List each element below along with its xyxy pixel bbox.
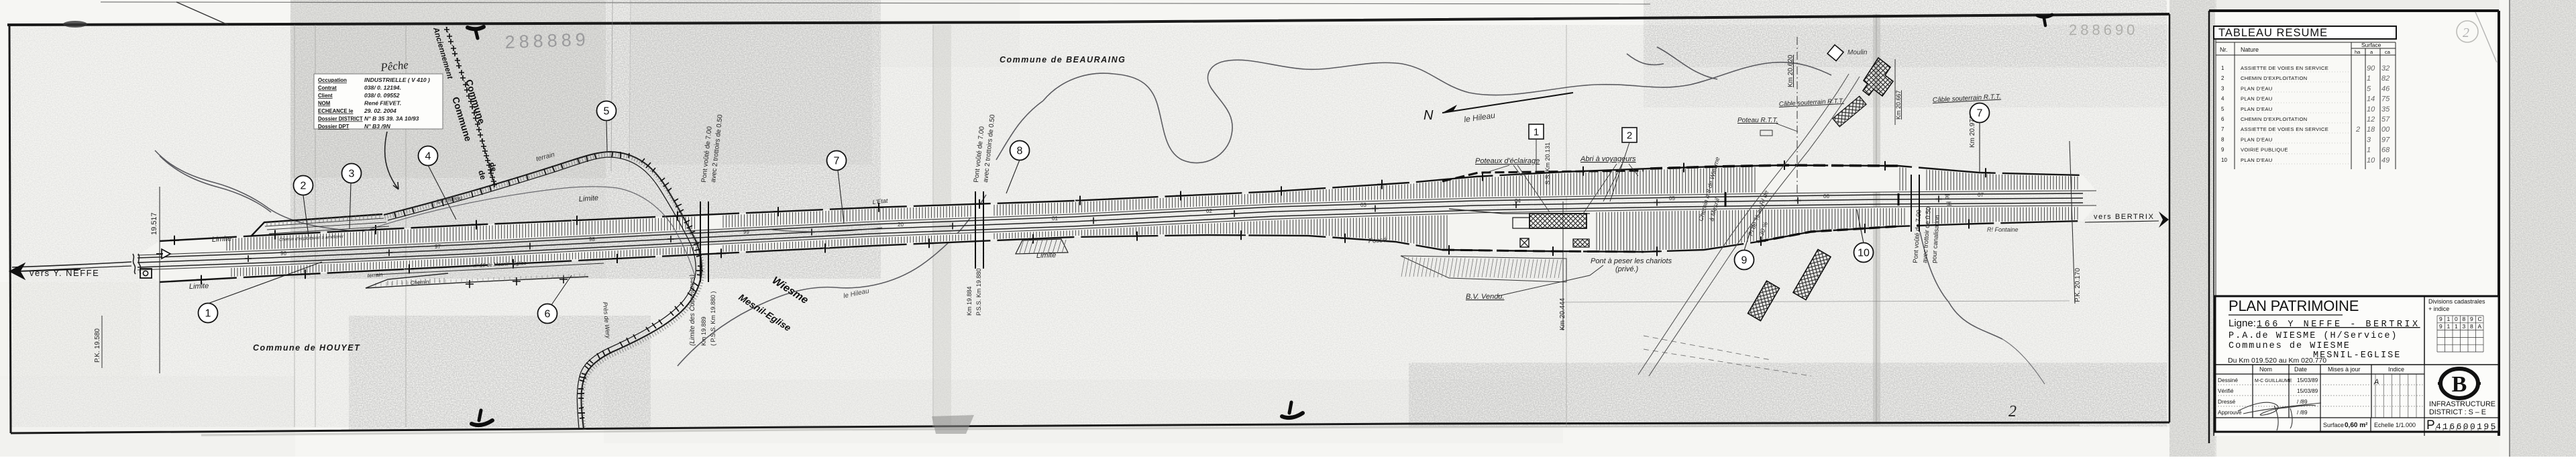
svg-text:ha: ha (2355, 49, 2361, 55)
svg-text:B.V. Vendu.: B.V. Vendu. (1466, 293, 1504, 301)
svg-text:98: 98 (589, 236, 595, 242)
svg-text:Poteaux d'éclairage: Poteaux d'éclairage (1475, 157, 1540, 165)
svg-text:68: 68 (2381, 146, 2390, 154)
svg-text:3: 3 (2221, 85, 2224, 91)
svg-text:75: 75 (2381, 95, 2390, 103)
svg-text:Communes de WIESME: Communes de WIESME (2229, 341, 2351, 351)
svg-text:9: 9 (2439, 323, 2443, 330)
svg-text:2: 2 (2463, 26, 2469, 40)
svg-text:4: 4 (2221, 96, 2224, 102)
svg-text:8: 8 (1017, 146, 1023, 157)
svg-text:NOM: NOM (318, 101, 330, 107)
svg-text:vers Y. NEFFE: vers Y. NEFFE (30, 268, 99, 278)
svg-text:P.A.de WIESME (H/Service): P.A.de WIESME (H/Service) (2229, 331, 2398, 341)
svg-text:6: 6 (545, 309, 551, 320)
svg-text:Km 20.620: Km 20.620 (1787, 54, 1794, 87)
svg-text:8: 8 (2221, 136, 2224, 142)
svg-text:ASSIETTE DE VOIES EN SERVICE: ASSIETTE DE VOIES EN SERVICE (2241, 65, 2328, 71)
svg-text:N° B3 /9N: N° B3 /9N (364, 123, 391, 130)
svg-text:ECHEANCE le: ECHEANCE le (318, 108, 354, 114)
svg-text:1: 1 (1534, 127, 1539, 138)
svg-text:terrain: terrain (368, 271, 384, 279)
svg-text:05: 05 (1669, 195, 1675, 201)
svg-text:3: 3 (2463, 323, 2466, 330)
svg-text:Client: Client (318, 93, 333, 99)
svg-text:15/03/89: 15/03/89 (2297, 388, 2318, 394)
svg-text:2: 2 (301, 181, 307, 192)
svg-text:9: 9 (2221, 147, 2224, 153)
svg-text:1: 1 (2221, 65, 2224, 71)
svg-text:5: 5 (2367, 85, 2371, 93)
svg-text:P.K. 20.170: P.K. 20.170 (2074, 268, 2082, 302)
svg-text:0: 0 (2455, 316, 2458, 322)
svg-text:19.517: 19.517 (150, 212, 158, 235)
svg-text:96: 96 (280, 250, 286, 257)
svg-text:/ /89: / /89 (2297, 410, 2308, 416)
svg-text:166 Y NEFFE - BERTRIX: 166 Y NEFFE - BERTRIX (2257, 320, 2420, 330)
svg-text:15/03/89: 15/03/89 (2297, 377, 2318, 383)
svg-text:2: 2 (2355, 126, 2360, 134)
svg-text:1: 1 (2367, 146, 2371, 154)
svg-text:8: 8 (2470, 323, 2473, 330)
svg-text:02: 02 (1206, 208, 1212, 214)
svg-text:Dossier DPT: Dossier DPT (318, 124, 350, 130)
svg-text:07: 07 (1978, 192, 1984, 198)
svg-text:CHEMIN D'EXPLOITATION: CHEMIN D'EXPLOITATION (2241, 75, 2307, 81)
svg-text:8: 8 (2463, 316, 2466, 322)
svg-text:A: A (2478, 323, 2482, 330)
svg-text:Dossier DISTRICT: Dossier DISTRICT (318, 116, 363, 122)
svg-text:1: 1 (205, 308, 211, 320)
svg-text:288690: 288690 (2069, 21, 2138, 38)
svg-text:20: 20 (898, 222, 904, 228)
svg-text:Dessiné: Dessiné (2218, 377, 2238, 383)
svg-text:Echelle 1/1.000: Echelle 1/1.000 (2374, 422, 2416, 428)
svg-text:Surface: Surface (2323, 422, 2344, 428)
svg-text:32: 32 (2381, 64, 2390, 73)
svg-text:Km 19.884: Km 19.884 (966, 286, 973, 316)
svg-text:416600195: 416600195 (2436, 422, 2498, 432)
svg-text:S.S. Km 20.131: S.S. Km 20.131 (1544, 142, 1551, 185)
svg-text:CHEMIN D'EXPLOITATION: CHEMIN D'EXPLOITATION (2241, 116, 2307, 122)
svg-text:DISTRICT : S – E: DISTRICT : S – E (2429, 408, 2486, 416)
svg-text:PLAN D'EAU: PLAN D'EAU (2241, 96, 2273, 102)
svg-text:Nom: Nom (2259, 366, 2272, 373)
svg-text:Commune de BEAURAING: Commune de BEAURAING (1000, 55, 1126, 64)
svg-text:ca: ca (2385, 49, 2391, 55)
svg-text:00: 00 (2381, 126, 2390, 134)
svg-text:(Limite des Communes): (Limite des Communes) (689, 275, 696, 346)
svg-text:PLAN D'EAU: PLAN D'EAU (2241, 157, 2273, 163)
svg-text:1: 1 (2367, 75, 2371, 83)
svg-text:Km 20.667: Km 20.667 (1895, 90, 1902, 120)
svg-text:Vérifié: Vérifié (2218, 387, 2234, 394)
svg-text:Ligne:: Ligne: (2229, 318, 2256, 329)
svg-text:R! Fontaine: R! Fontaine (1987, 226, 2019, 233)
svg-text:Commune de HOUYET: Commune de HOUYET (253, 343, 360, 353)
svg-text:Moulin: Moulin (1847, 49, 1868, 56)
svg-text:Limite: Limite (189, 282, 209, 291)
svg-text:Surface: Surface (2361, 42, 2381, 48)
svg-text:10: 10 (2367, 156, 2375, 165)
svg-text:PLAN D'EAU: PLAN D'EAU (2241, 85, 2273, 91)
svg-text:B: B (2452, 372, 2467, 397)
svg-text:0,60 m²: 0,60 m² (2345, 422, 2368, 429)
svg-text:90: 90 (2367, 64, 2375, 73)
svg-text:5: 5 (2221, 106, 2224, 112)
svg-text:INDUSTRIELLE ( V 410 ): INDUSTRIELLE ( V 410 ) (364, 77, 430, 83)
svg-text:INFRASTRUCTURE: INFRASTRUCTURE (2429, 400, 2495, 408)
svg-text:PLAN PATRIMOINE: PLAN PATRIMOINE (2229, 297, 2359, 314)
svg-text:288889: 288889 (504, 30, 590, 52)
svg-text:René FIEVET.: René FIEVET. (364, 100, 401, 107)
svg-text:Nature: Nature (2241, 46, 2259, 53)
svg-text:Abri à voyageurs: Abri à voyageurs (1580, 155, 1636, 163)
svg-text:3: 3 (349, 169, 355, 180)
svg-text:/ /89: / /89 (2297, 399, 2308, 405)
svg-text:Mises à jour: Mises à jour (2328, 366, 2361, 373)
svg-text:Du Km 019.520 au Km 020.770: Du Km 019.520 au Km 020.770 (2228, 357, 2326, 365)
svg-text:06: 06 (1823, 193, 1829, 199)
svg-text:14: 14 (2367, 95, 2375, 103)
svg-text:Limite: Limite (578, 194, 598, 203)
svg-text:N: N (1424, 108, 1434, 123)
svg-text:35: 35 (2381, 105, 2390, 113)
svg-text:12: 12 (2367, 116, 2375, 124)
svg-text:Approuvé: Approuvé (2218, 409, 2242, 416)
svg-text:PLAN D'EAU: PLAN D'EAU (2241, 136, 2273, 142)
svg-text:+ indice: + indice (2428, 306, 2449, 312)
svg-text:TABLEAU RESUME: TABLEAU RESUME (2218, 27, 2328, 39)
svg-text:7: 7 (834, 156, 840, 167)
svg-text:P: P (2426, 418, 2435, 432)
svg-text:VOIRIE PUBLIQUE: VOIRIE PUBLIQUE (2241, 147, 2288, 153)
svg-text:Divisions cadastrales: Divisions cadastrales (2428, 298, 2485, 305)
svg-text:PLAN D'EAU: PLAN D'EAU (2241, 106, 2273, 112)
svg-text:Fossé: Fossé (1368, 236, 1387, 245)
svg-text:Pont à peser les chariots: Pont à peser les chariots (1591, 257, 1672, 265)
svg-text:03: 03 (1360, 202, 1366, 208)
svg-text:Poteau R.T.T.: Poteau R.T.T. (1737, 117, 1778, 124)
svg-text:P.K. 19.580: P.K. 19.580 (94, 328, 101, 363)
svg-text:49: 49 (2381, 156, 2390, 165)
svg-text:82: 82 (2381, 75, 2390, 83)
svg-text:C: C (2478, 316, 2482, 322)
svg-text:7: 7 (1977, 108, 1983, 120)
svg-text:A: A (2373, 378, 2379, 386)
svg-text:2: 2 (2008, 403, 2017, 420)
svg-text:Km 19.889: Km 19.889 (700, 316, 707, 346)
svg-text:Limite: Limite (212, 234, 232, 244)
svg-text:Nr.: Nr. (2220, 46, 2228, 53)
svg-text:2: 2 (1627, 130, 1632, 142)
svg-text:97: 97 (2381, 136, 2390, 144)
svg-text:10: 10 (2367, 105, 2375, 113)
svg-text:Km 20.444: Km 20.444 (1559, 297, 1566, 330)
svg-text:P.S.S. Km 19.880: P.S.S. Km 19.880 (975, 269, 982, 316)
svg-text:Dressé: Dressé (2218, 398, 2236, 405)
svg-text:Contrat: Contrat (318, 85, 337, 91)
svg-text:57: 57 (2381, 116, 2390, 124)
svg-text:6: 6 (2221, 116, 2224, 122)
svg-text:Date: Date (2294, 366, 2307, 373)
svg-text:038/ 0. 12194.: 038/ 0. 12194. (364, 85, 401, 91)
svg-text:3: 3 (2367, 136, 2371, 144)
svg-text:vers BERTRIX: vers BERTRIX (2094, 213, 2155, 221)
svg-text:04: 04 (1515, 198, 1521, 204)
svg-text:9: 9 (2439, 316, 2443, 322)
svg-text:1: 1 (2447, 316, 2451, 322)
svg-text:99: 99 (743, 229, 749, 235)
svg-text:1: 1 (2447, 323, 2451, 330)
svg-text:29. 02. 2004: 29. 02. 2004 (364, 107, 396, 114)
svg-text:N° B 35 39. 3A 10/93: N° B 35 39. 3A 10/93 (364, 116, 419, 122)
svg-text:18: 18 (2367, 126, 2375, 134)
svg-text:Indice: Indice (2388, 366, 2404, 373)
svg-text:(privé.): (privé.) (1615, 265, 1639, 273)
svg-text:10: 10 (1858, 248, 1870, 259)
svg-text:46: 46 (2381, 85, 2390, 93)
svg-text:4: 4 (425, 151, 431, 163)
svg-text:5: 5 (604, 106, 610, 118)
svg-text:Limite: Limite (1036, 251, 1057, 260)
svg-text:7: 7 (2221, 126, 2224, 132)
svg-text:Occupation: Occupation (318, 77, 347, 83)
svg-text:10: 10 (2221, 157, 2227, 163)
svg-text:2: 2 (2221, 75, 2224, 81)
svg-text:038/ 0. 09552: 038/ 0. 09552 (364, 92, 400, 99)
svg-text:9: 9 (1741, 255, 1748, 267)
svg-text:01: 01 (1052, 216, 1058, 222)
svg-text:1: 1 (2455, 323, 2458, 330)
svg-text:M-C GUILLAUME: M-C GUILLAUME (2255, 379, 2292, 383)
svg-text:( P.S.S. Km 19.880 ): ( P.S.S. Km 19.880 ) (710, 291, 716, 346)
svg-text:ASSIETTE DE VOIES EN SERVICE: ASSIETTE DE VOIES EN SERVICE (2241, 126, 2328, 132)
svg-text:9: 9 (2470, 316, 2473, 322)
svg-text:97: 97 (435, 244, 441, 250)
